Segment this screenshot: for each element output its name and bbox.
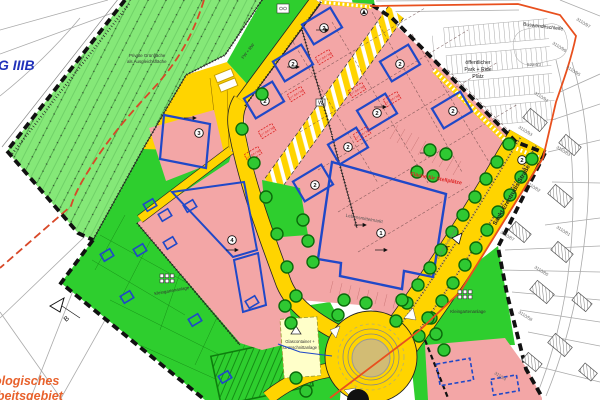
svg-text:Park + Ride: Park + Ride xyxy=(464,67,491,73)
svg-text:Private Grünfläche: Private Grünfläche xyxy=(129,53,166,58)
svg-text:2: 2 xyxy=(398,62,401,68)
svg-text:2: 2 xyxy=(346,145,349,151)
svg-text:G IIIB: G IIIB xyxy=(0,57,35,73)
svg-text:Platz: Platz xyxy=(472,74,484,80)
svg-text:Kleingartenanlage: Kleingartenanlage xyxy=(450,309,486,314)
svg-text:2: 2 xyxy=(520,158,523,164)
svg-text:2: 2 xyxy=(451,109,454,115)
svg-text:Glascontainer +: Glascontainer + xyxy=(285,339,315,344)
svg-text:ologisches: ologisches xyxy=(0,374,59,388)
svg-text:2: 2 xyxy=(375,111,378,117)
svg-text:als Ausgleichsfläche: als Ausgleichsfläche xyxy=(127,59,167,64)
svg-text:rbeitsgebiet: rbeitsgebiet xyxy=(0,389,64,400)
svg-text:öffentlicher: öffentlicher xyxy=(465,60,491,66)
svg-text:2: 2 xyxy=(313,183,316,189)
svg-text:5224/3: 5224/3 xyxy=(527,62,541,67)
